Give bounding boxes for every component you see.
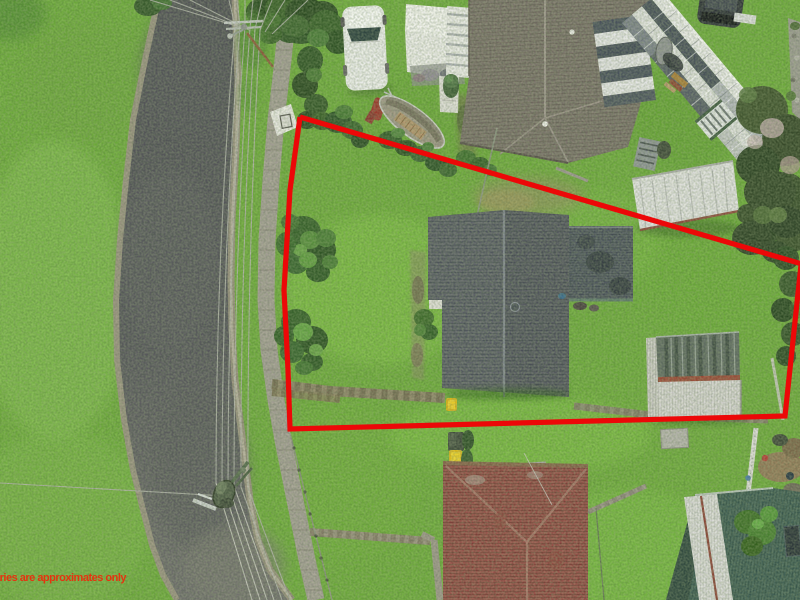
svg-text:aries are approximates only: aries are approximates only (0, 572, 127, 584)
